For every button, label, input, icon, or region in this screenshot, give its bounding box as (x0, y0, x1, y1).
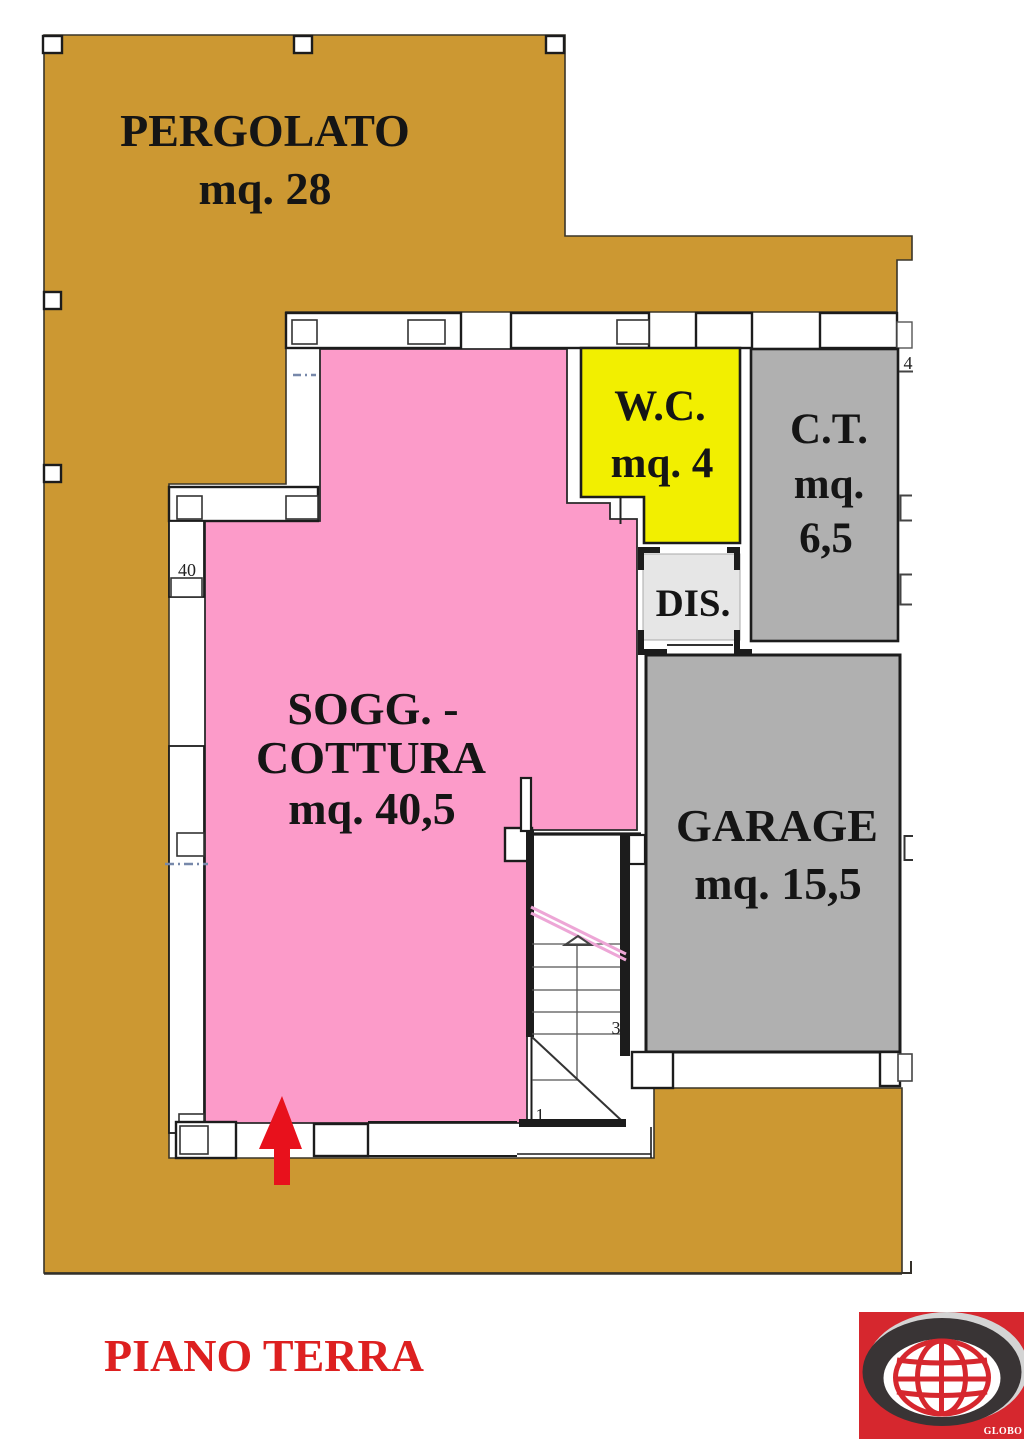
svg-text:DIS.: DIS. (656, 582, 731, 625)
svg-text:mq. 4: mq. 4 (611, 440, 714, 487)
svg-text:mq. 40,5: mq. 40,5 (288, 783, 455, 834)
svg-text:GARAGE: GARAGE (676, 800, 878, 851)
svg-text:PERGOLATO: PERGOLATO (120, 105, 410, 156)
svg-text:GLOBO: GLOBO (984, 1426, 1023, 1437)
svg-text:mq.: mq. (794, 461, 864, 508)
svg-text:COTTURA: COTTURA (256, 732, 486, 783)
svg-text:C.T.: C.T. (790, 406, 868, 453)
svg-text:40: 40 (178, 560, 196, 580)
svg-text:mq. 15,5: mq. 15,5 (694, 858, 861, 909)
svg-text:mq. 28: mq. 28 (199, 163, 332, 214)
svg-text:6,5: 6,5 (799, 515, 853, 562)
svg-text:4: 4 (904, 353, 913, 373)
svg-text:PIANO TERRA: PIANO TERRA (104, 1330, 424, 1381)
svg-text:3: 3 (612, 1018, 621, 1038)
svg-text:SOGG. -: SOGG. - (287, 683, 458, 734)
svg-text:W.C.: W.C. (614, 383, 706, 430)
